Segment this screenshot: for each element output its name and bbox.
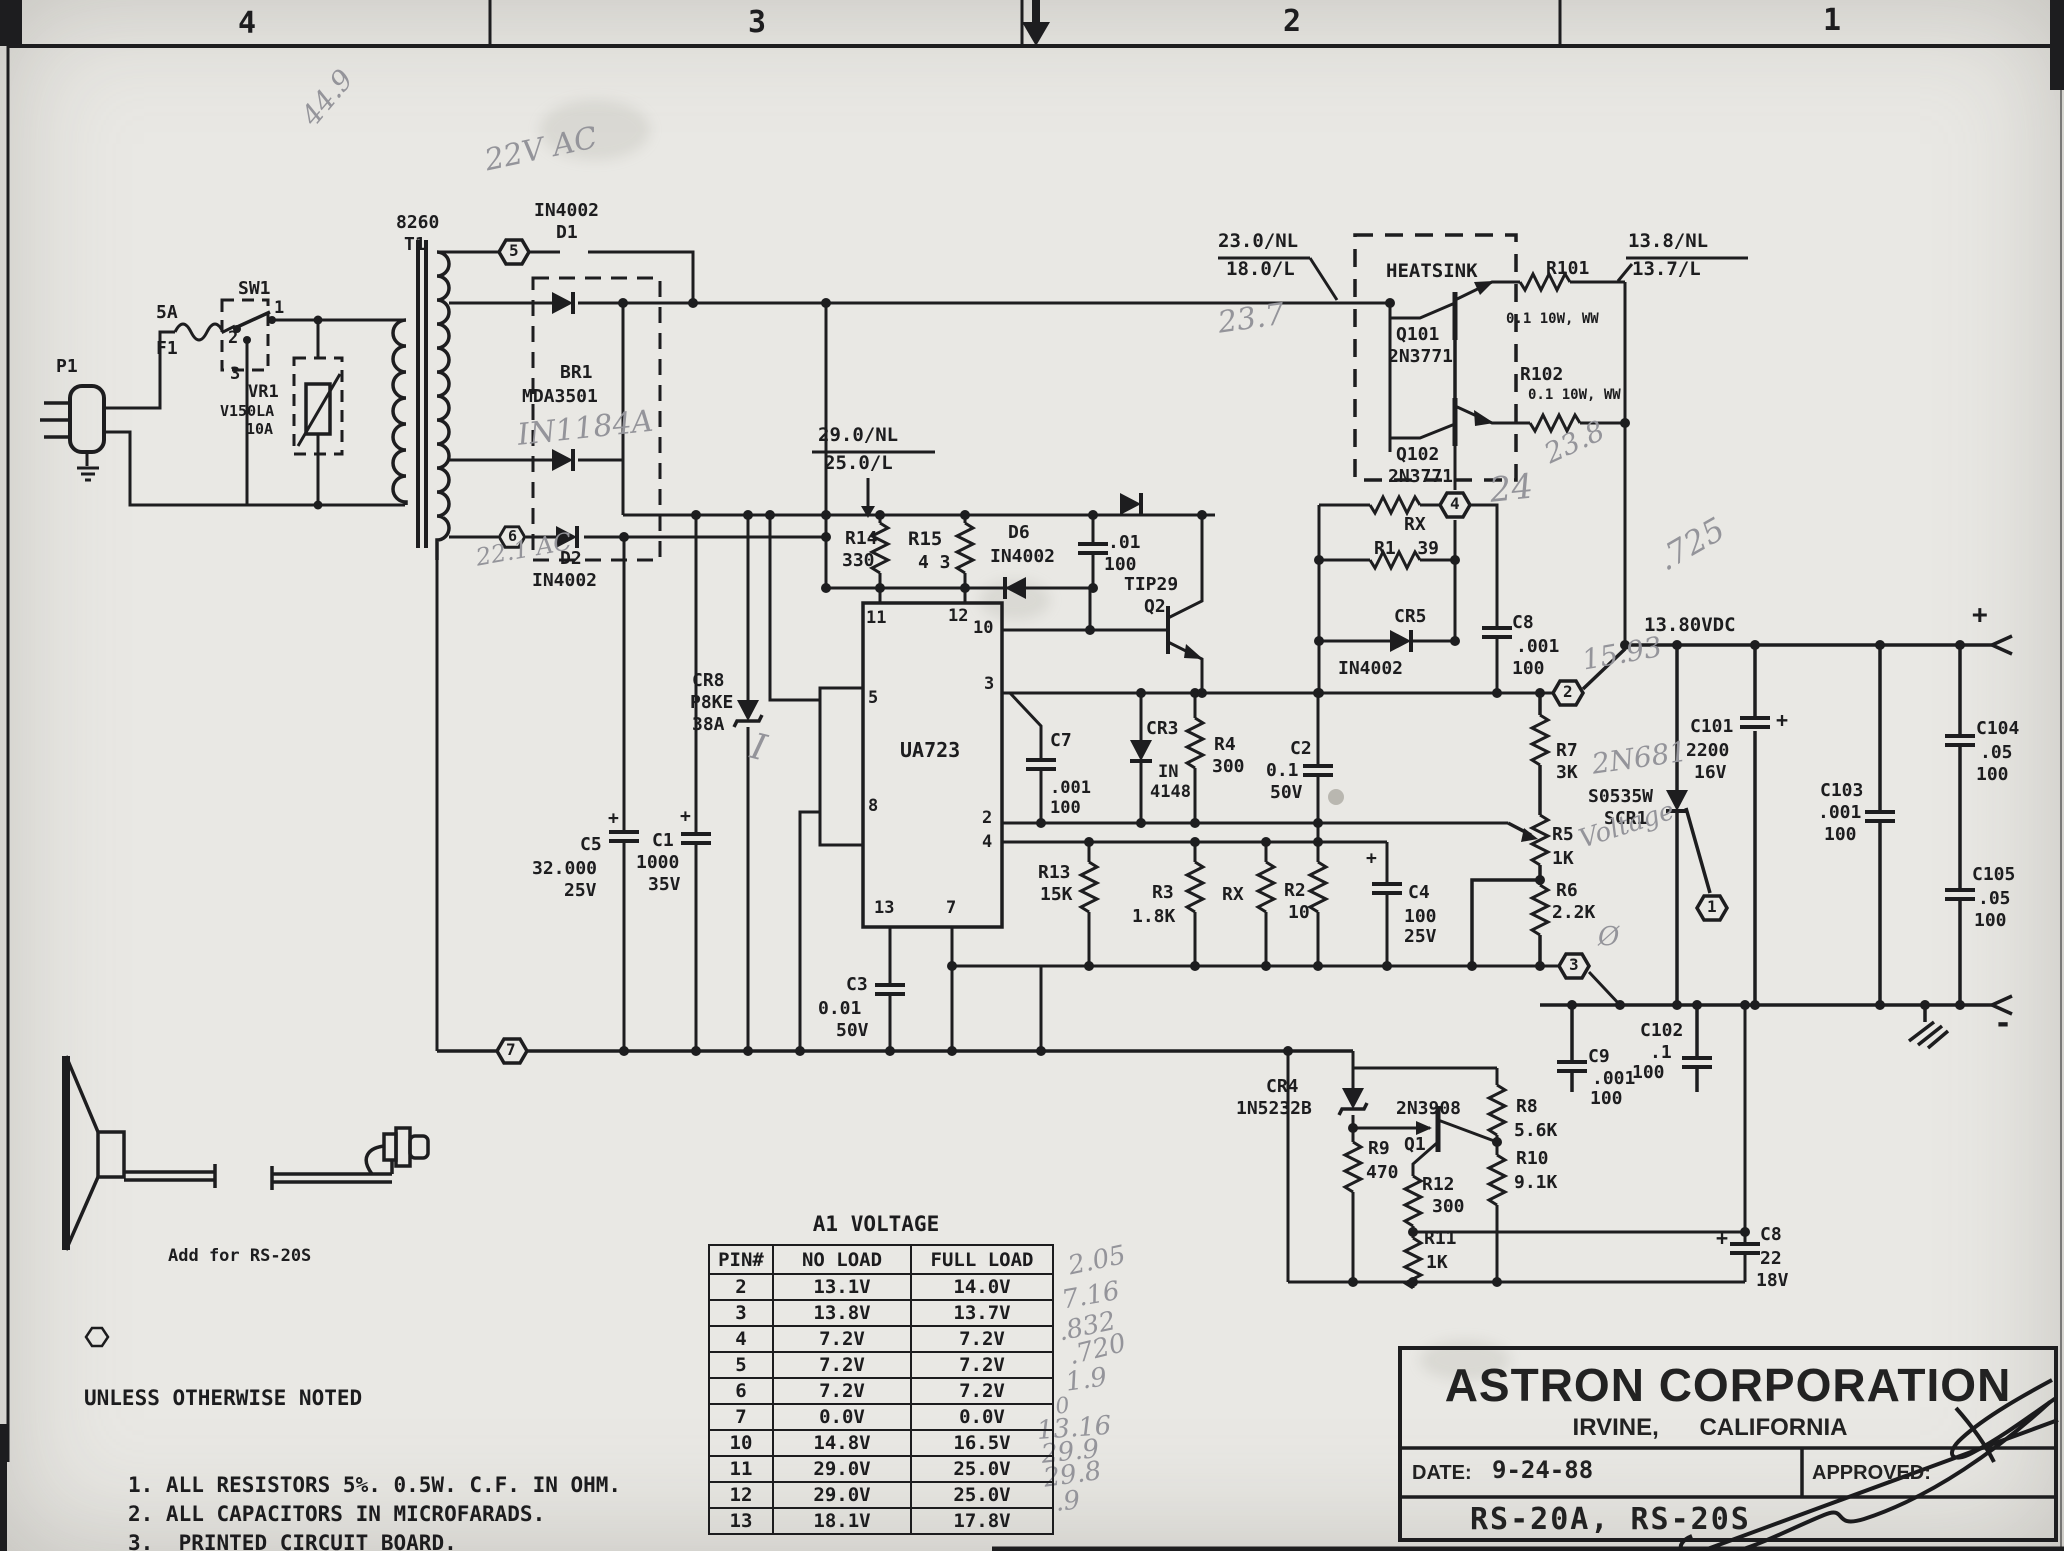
label-r12: R12 xyxy=(1422,1176,1455,1195)
label-c101: C101 xyxy=(1690,718,1733,737)
label-c105-volt: 100 xyxy=(1974,912,2007,931)
table-cell: 25.0V xyxy=(911,1456,1053,1482)
diode-br1-bot xyxy=(552,449,573,471)
table-row: 213.1V14.0V xyxy=(709,1274,1053,1300)
r3-symbol xyxy=(1187,862,1203,912)
mic-connector-drawing xyxy=(272,1128,428,1190)
label-pcbpin-2: 2 xyxy=(1563,684,1573,701)
company-name: ASTRON CORPORATION xyxy=(1400,1358,2056,1412)
zener-cr8 xyxy=(734,700,762,727)
label-r11: R11 xyxy=(1424,1230,1457,1249)
label-c6-val: .01 xyxy=(1108,534,1141,553)
transformer-t1 xyxy=(393,240,449,560)
r15 xyxy=(957,523,973,573)
label-br1-part: MDA3501 xyxy=(522,388,598,407)
label-volt-138nl: 13.8/NL xyxy=(1628,232,1708,252)
notes-heading: UNLESS OTHERWISE NOTED xyxy=(84,1384,621,1413)
table-row: 1229.0V25.0V xyxy=(709,1482,1053,1508)
label-r4: R4 xyxy=(1214,736,1236,755)
label-r3: R3 xyxy=(1152,884,1174,903)
note-item: 2. ALL CAPACITORS IN MICROFARADS. xyxy=(128,1500,621,1529)
table-row: 47.2V7.2V xyxy=(709,1326,1053,1352)
label-r5: R5 xyxy=(1552,826,1574,845)
label-f1: F1 xyxy=(156,340,178,359)
label-cr8-val: 38A xyxy=(692,716,725,735)
table-cell: 7.2V xyxy=(773,1378,911,1404)
table-row: 1014.8V16.5V xyxy=(709,1430,1053,1456)
label-r6-val: 2.2K xyxy=(1552,904,1595,923)
label-q1: Q1 xyxy=(1404,1136,1426,1155)
label-c7: C7 xyxy=(1050,732,1072,751)
table-cell: 7.2V xyxy=(773,1326,911,1352)
label-volt-18l: 18.0/L xyxy=(1226,260,1295,280)
label-pin11: 11 xyxy=(866,610,886,628)
table-cell: 6 xyxy=(709,1378,773,1404)
date-value: 9-24-88 xyxy=(1492,1456,1593,1484)
speaker-drawing xyxy=(66,1056,215,1250)
c102-symbol xyxy=(1682,1058,1712,1067)
table-cell: 11 xyxy=(709,1456,773,1482)
label-vr1: VR1 xyxy=(248,384,279,402)
emitter-resistors xyxy=(1570,282,1625,645)
cap-c1 xyxy=(681,834,711,843)
ground-rail xyxy=(437,966,1353,1051)
label-volt-25l: 25.0/L xyxy=(824,454,893,474)
label-d6: D6 xyxy=(1008,524,1030,543)
label-pin8: 8 xyxy=(868,798,878,816)
table-cell: 29.0V xyxy=(773,1482,911,1508)
label-c105: C105 xyxy=(1972,866,2015,885)
label-cr3: CR3 xyxy=(1146,720,1179,739)
label-c5-val: 32.000 xyxy=(532,860,597,879)
hand-phi: Ø xyxy=(1598,924,1619,951)
label-c3-val: 0.01 xyxy=(818,1000,861,1019)
table-cell: 18.1V xyxy=(773,1508,911,1534)
label-r8: R8 xyxy=(1516,1098,1538,1117)
ground-icon xyxy=(77,452,99,480)
cr4-symbol xyxy=(1339,1088,1367,1115)
label-d1: D1 xyxy=(556,224,578,243)
label-c104-volt: 100 xyxy=(1976,766,2009,785)
table-cell: 13.8V xyxy=(773,1300,911,1326)
label-r14-val: 330 xyxy=(842,552,875,571)
label-sw1-c3: 3 xyxy=(230,366,240,384)
table-cell: 7.2V xyxy=(911,1378,1053,1404)
table-cell: 2 xyxy=(709,1274,773,1300)
label-c5-volt: 25V xyxy=(564,882,597,901)
label-d6-part: IN4002 xyxy=(990,548,1055,567)
label-c4: C4 xyxy=(1408,884,1430,903)
diode-br1-top xyxy=(552,292,573,314)
label-pcbpin-7: 7 xyxy=(506,1042,516,1059)
label-pin13: 13 xyxy=(874,900,894,918)
rx2-symbol xyxy=(1258,862,1274,912)
table-cell: 7 xyxy=(709,1404,773,1430)
label-cr5-part: IN4002 xyxy=(1338,660,1403,679)
label-c2: C2 xyxy=(1290,740,1312,759)
label-c103-val: .001 xyxy=(1818,804,1861,823)
label-ua723: UA723 xyxy=(900,740,960,761)
label-q1-part: 2N3908 xyxy=(1396,1100,1461,1119)
label-cr3-p2: 4148 xyxy=(1150,784,1191,802)
table-cell: 12 xyxy=(709,1482,773,1508)
cr5-symbol xyxy=(1390,630,1411,652)
label-c101-val: 2200 xyxy=(1686,742,1729,761)
pcb-hexagon-icon xyxy=(84,1326,110,1348)
schematic-sheet: 4 3 2 1 8260T1IN4002D1SW11235AF1P1VR1V15… xyxy=(0,0,2064,1551)
table-cell: 7.2V xyxy=(911,1326,1053,1352)
label-d2-part: IN4002 xyxy=(532,572,597,591)
label-c103: C103 xyxy=(1820,782,1863,801)
label-c3-volt: 50V xyxy=(836,1022,869,1041)
lvp-subcircuit xyxy=(1288,1005,1745,1288)
label-c5: C5 xyxy=(580,836,602,855)
r13-symbol xyxy=(1081,862,1097,912)
label-pcbpin-4: 4 xyxy=(1450,496,1460,513)
label-c1-val: 1000 xyxy=(636,854,679,873)
label-pin5: 5 xyxy=(868,690,878,708)
label-r102-val: 0.1 10W, WW xyxy=(1528,388,1621,403)
label-rx2: RX xyxy=(1222,886,1244,905)
label-c8a: C8 xyxy=(1512,614,1534,633)
c8b-symbol xyxy=(1730,1244,1760,1253)
company-location: IRVINE, CALIFORNIA xyxy=(1400,1414,2020,1442)
label-cr3-p1: IN xyxy=(1158,764,1178,782)
table-cell: 25.0V xyxy=(911,1482,1053,1508)
table-cell: 13.1V xyxy=(773,1274,911,1300)
label-r13-val: 15K xyxy=(1040,886,1073,905)
label-c8b-volt: 18V xyxy=(1756,1272,1789,1291)
label-q102: Q102 xyxy=(1396,446,1439,465)
label-volt-29nl: 29.0/NL xyxy=(818,426,898,446)
label-pin10: 10 xyxy=(973,620,993,638)
table-row: 1129.0V25.0V xyxy=(709,1456,1053,1482)
rx1-symbol xyxy=(1370,497,1420,513)
table-cell: 14.8V xyxy=(773,1430,911,1456)
table-cell: 29.0V xyxy=(773,1456,911,1482)
label-c9-val: .001 xyxy=(1592,1070,1635,1089)
label-c9-volt: 100 xyxy=(1590,1090,1623,1109)
cap-c7 xyxy=(1026,760,1056,769)
label-c1-plus: + xyxy=(680,808,691,827)
r8-symbol xyxy=(1489,1085,1505,1135)
c2-symbol xyxy=(1303,766,1333,775)
label-c102-val: .1 xyxy=(1650,1044,1672,1063)
table-row: 70.0V0.0V xyxy=(709,1404,1053,1430)
table-row: 57.2V7.2V xyxy=(709,1352,1053,1378)
label-rs20s-caption: Add for RS-20S xyxy=(168,1248,311,1266)
fuse-f1 xyxy=(175,324,235,340)
table-cell: 10 xyxy=(709,1430,773,1456)
label-r6: R6 xyxy=(1556,882,1578,901)
label-r9-val: 470 xyxy=(1366,1164,1399,1183)
transistor-q2 xyxy=(1168,515,1203,693)
label-r14: R14 xyxy=(845,530,878,549)
c8a-symbol xyxy=(1482,628,1512,637)
label-sw1-c1: 1 xyxy=(274,300,284,318)
r6-symbol xyxy=(1532,885,1548,935)
label-c8a-val: .001 xyxy=(1516,638,1559,657)
label-r1: R1 39 xyxy=(1374,540,1439,559)
label-r13: R13 xyxy=(1038,864,1071,883)
table-cell: 14.0V xyxy=(911,1274,1053,1300)
label-c101-plus: + xyxy=(1776,710,1788,731)
cap-c5 xyxy=(609,832,639,841)
label-r3-val: 1.8K xyxy=(1132,908,1175,927)
label-c7-volt: 100 xyxy=(1050,800,1081,818)
label-q101-part: 2N3771 xyxy=(1388,348,1453,367)
ground-icon xyxy=(1909,1022,1948,1048)
r7-symbol xyxy=(1532,715,1548,765)
table-cell: 7.2V xyxy=(911,1352,1053,1378)
label-vr1-rating: 10A xyxy=(246,422,273,438)
cap-c3 xyxy=(875,985,905,994)
label-cr4: CR4 xyxy=(1266,1078,1299,1097)
label-sw1: SW1 xyxy=(238,280,271,299)
model-numbers: RS-20A, RS-20S xyxy=(1470,1502,1751,1537)
label-r10: R10 xyxy=(1516,1150,1549,1169)
c105-symbol xyxy=(1945,890,1975,899)
zone-1: 1 xyxy=(1823,3,1841,38)
label-r102: R102 xyxy=(1520,366,1563,385)
label-c105-val: .05 xyxy=(1978,890,2011,909)
label-r12-val: 300 xyxy=(1432,1198,1465,1217)
zone-4: 4 xyxy=(238,6,256,41)
diode-d1 xyxy=(1120,493,1141,515)
label-p1: P1 xyxy=(56,358,78,377)
label-c2-val: 0.1 xyxy=(1266,762,1299,781)
label-c4-plus: + xyxy=(1366,850,1377,869)
label-r101-val: 0.1 10W, WW xyxy=(1506,312,1599,327)
label-out-plus: + xyxy=(1972,602,1988,629)
label-c4-volt: 25V xyxy=(1404,928,1437,947)
label-rx1: RX xyxy=(1404,516,1426,535)
q1-base-arrow xyxy=(1416,1121,1432,1135)
label-q2: Q2 xyxy=(1144,598,1166,617)
label-c103-volt: 100 xyxy=(1824,826,1857,845)
label-f1-rating: 5A xyxy=(156,304,178,323)
label-q102-part: 2N3771 xyxy=(1388,468,1453,487)
label-c8b-plus: + xyxy=(1716,1228,1728,1249)
table-row: 67.2V7.2V xyxy=(709,1378,1053,1404)
label-pin4: 4 xyxy=(982,834,992,852)
label-c2-volt: 50V xyxy=(1270,784,1303,803)
label-c6-volt: 100 xyxy=(1104,556,1137,575)
notes-block: UNLESS OTHERWISE NOTED 1. ALL RESISTORS … xyxy=(84,1326,621,1551)
label-r9: R9 xyxy=(1368,1140,1390,1159)
r4-symbol xyxy=(1187,718,1203,768)
date-label: DATE: xyxy=(1412,1462,1472,1485)
table-row: 313.8V13.7V xyxy=(709,1300,1053,1326)
table-cell: 0.0V xyxy=(773,1404,911,1430)
label-r7: R7 xyxy=(1556,742,1578,761)
label-pcbpin-3: 3 xyxy=(1569,957,1579,974)
hand-m10: .9 xyxy=(1054,1487,1082,1517)
label-c1-volt: 35V xyxy=(648,876,681,895)
label-c8b: C8 xyxy=(1760,1226,1782,1245)
voltage-table-col-pin: PIN# xyxy=(709,1245,773,1274)
r5-symbol xyxy=(1532,815,1548,865)
hand-m5: 1.9 xyxy=(1064,1364,1109,1397)
label-c101-volt: 16V xyxy=(1694,764,1727,783)
label-out-minus: - xyxy=(1994,1008,2012,1040)
table-row: 1318.1V17.8V xyxy=(709,1508,1053,1534)
cap-c6 xyxy=(1078,544,1108,553)
label-c102-volt: 100 xyxy=(1632,1064,1665,1083)
label-pcbpin-1: 1 xyxy=(1707,899,1717,916)
label-r15: R15 xyxy=(908,530,942,550)
label-c5-plus: + xyxy=(608,810,619,829)
approved-label: APPROVED: xyxy=(1812,1462,1931,1485)
hand-24: 24 xyxy=(1488,469,1535,509)
r2-symbol xyxy=(1310,862,1326,912)
label-pin7: 7 xyxy=(946,900,956,918)
label-r10-val: 9.1K xyxy=(1514,1174,1557,1193)
label-br1: BR1 xyxy=(560,364,593,383)
table-cell: 0.0V xyxy=(911,1404,1053,1430)
label-r5-val: 1K xyxy=(1552,850,1574,869)
voltage-table-col-fullload: FULL LOAD xyxy=(911,1245,1053,1274)
label-t1: T1 xyxy=(404,236,426,255)
label-volt-137l: 13.7/L xyxy=(1632,260,1701,280)
ac-plug xyxy=(40,386,104,452)
zone-3: 3 xyxy=(748,5,766,40)
label-pin12: 12 xyxy=(948,608,968,626)
label-r7-val: 3K xyxy=(1556,764,1578,783)
label-c102: C102 xyxy=(1640,1022,1683,1041)
label-cr8: CR8 xyxy=(692,672,725,691)
label-q101: Q101 xyxy=(1396,326,1439,345)
label-c104: C104 xyxy=(1976,720,2019,739)
table-cell: 4 xyxy=(709,1326,773,1352)
table-cell: 7.2V xyxy=(773,1352,911,1378)
label-r11-val: 1K xyxy=(1426,1254,1448,1273)
table-cell: 16.5V xyxy=(911,1430,1053,1456)
label-c7-val: .001 xyxy=(1050,780,1091,798)
label-r15-val: 4 3 xyxy=(918,554,951,573)
label-q2-part: TIP29 xyxy=(1124,576,1178,595)
r9-symbol xyxy=(1345,1142,1361,1192)
label-c4-val: 100 xyxy=(1404,908,1437,927)
label-pin2: 2 xyxy=(982,810,992,828)
label-cr8-part: P8KE xyxy=(690,694,733,713)
label-r8-val: 5.6K xyxy=(1514,1122,1557,1141)
voltage-table-title: A1 VOLTAGE xyxy=(708,1212,1044,1236)
table-cell: 3 xyxy=(709,1300,773,1326)
label-cr5: CR5 xyxy=(1394,608,1427,627)
c104-symbol xyxy=(1945,736,1975,745)
r10-symbol xyxy=(1489,1155,1505,1205)
c101-symbol xyxy=(1740,718,1770,727)
label-c3: C3 xyxy=(846,976,868,995)
ic-ua723 xyxy=(820,603,1002,927)
label-vr1-part: V150LA xyxy=(220,404,274,420)
label-r2-val: 10 xyxy=(1288,904,1310,923)
table-cell: 17.8V xyxy=(911,1508,1053,1534)
c9-symbol xyxy=(1557,1062,1587,1071)
label-sw1-c2: 2 xyxy=(228,330,238,348)
label-t1-part: 8260 xyxy=(396,214,439,233)
voltage-table-col-noload: NO LOAD xyxy=(773,1245,911,1274)
table-cell: 13 xyxy=(709,1508,773,1534)
label-d1-part: IN4002 xyxy=(534,202,599,221)
label-r2: R2 xyxy=(1284,882,1306,901)
label-c1: C1 xyxy=(652,832,674,851)
table-cell: 13.7V xyxy=(911,1300,1053,1326)
table-cell: 5 xyxy=(709,1352,773,1378)
label-pcbpin-5: 5 xyxy=(509,243,519,260)
label-volt-23nl: 23.0/NL xyxy=(1218,232,1298,252)
label-c9: C9 xyxy=(1588,1048,1610,1067)
label-r101: R101 xyxy=(1546,260,1589,279)
voltage-table: PIN# NO LOAD FULL LOAD 213.1V14.0V313.8V… xyxy=(708,1244,1054,1535)
label-r4-val: 300 xyxy=(1212,758,1245,777)
r12-symbol xyxy=(1405,1176,1421,1226)
label-heatsink: HEATSINK xyxy=(1386,262,1478,282)
c4-symbol xyxy=(1372,884,1402,893)
label-pin3: 3 xyxy=(984,676,994,694)
diode-d6 xyxy=(1005,577,1026,599)
cr3-symbol xyxy=(1130,740,1152,761)
label-c104-val: .05 xyxy=(1980,744,2013,763)
label-c8b-val: 22 xyxy=(1760,1250,1782,1269)
zone-2: 2 xyxy=(1283,4,1301,39)
label-cr4-part: 1N5232B xyxy=(1236,1100,1312,1119)
c103-symbol xyxy=(1865,812,1895,821)
note-item: 3. PRINTED CIRCUIT BOARD. xyxy=(128,1529,621,1551)
label-c8a-volt: 100 xyxy=(1512,660,1545,679)
note-item: 1. ALL RESISTORS 5%. 0.5W. C.F. IN OHM. xyxy=(128,1471,621,1500)
